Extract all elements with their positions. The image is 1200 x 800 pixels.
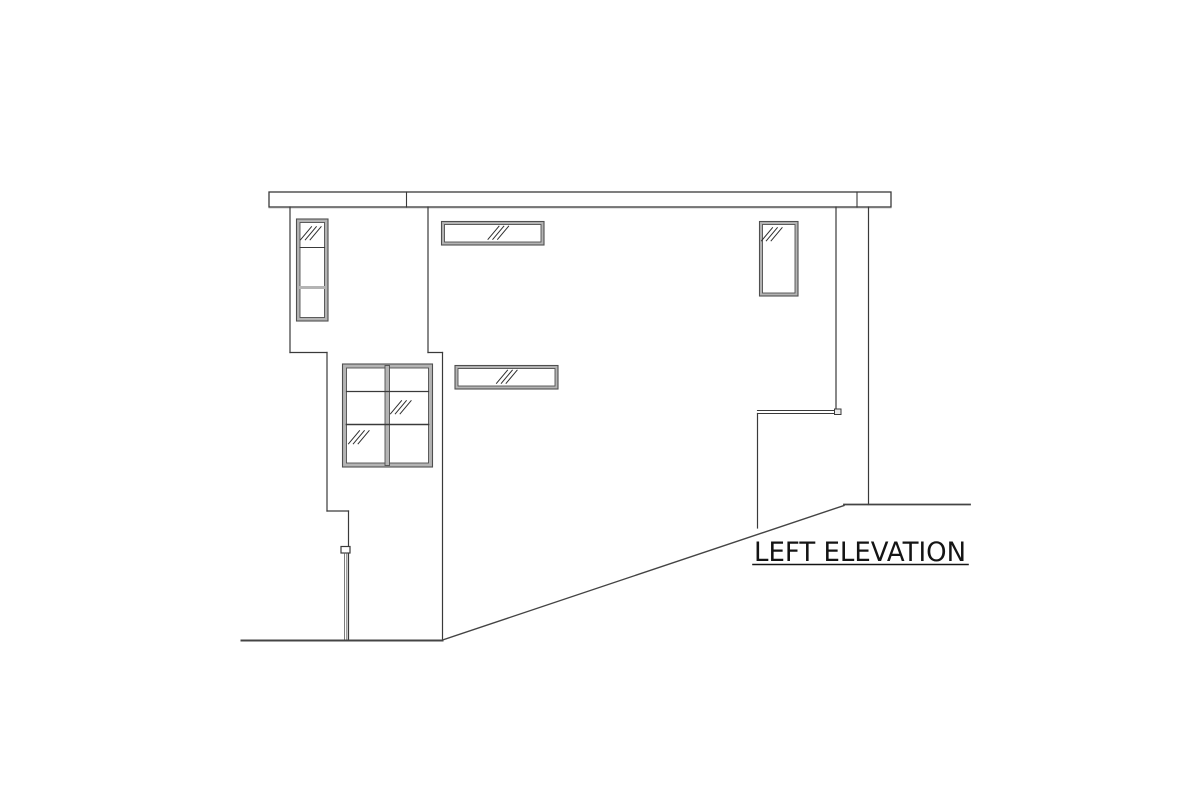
window-tall-left (297, 219, 329, 321)
window-large-casement (343, 364, 433, 467)
ledge-end-cap (835, 409, 842, 415)
window-large-casement-mullion (385, 366, 390, 466)
elevation-sheet: LEFT ELEVATION (0, 0, 1200, 800)
roof-fascia-band (269, 192, 891, 207)
downspout-box (341, 547, 350, 554)
window-right-vertical-frame-band (761, 223, 797, 295)
window-clerestory-mid (455, 366, 558, 390)
grade-lines (242, 505, 971, 641)
window-clerestory-top (442, 222, 545, 246)
left-elevation-drawing: LEFT ELEVATION (0, 0, 1200, 800)
patio-wall-ledge (758, 409, 842, 415)
window-right-vertical (760, 222, 799, 297)
window-tall-left-frame-band (298, 221, 326, 320)
grade-line-slope (443, 506, 845, 641)
roof-fascia (269, 192, 891, 208)
drawing-title: LEFT ELEVATION (754, 537, 966, 568)
